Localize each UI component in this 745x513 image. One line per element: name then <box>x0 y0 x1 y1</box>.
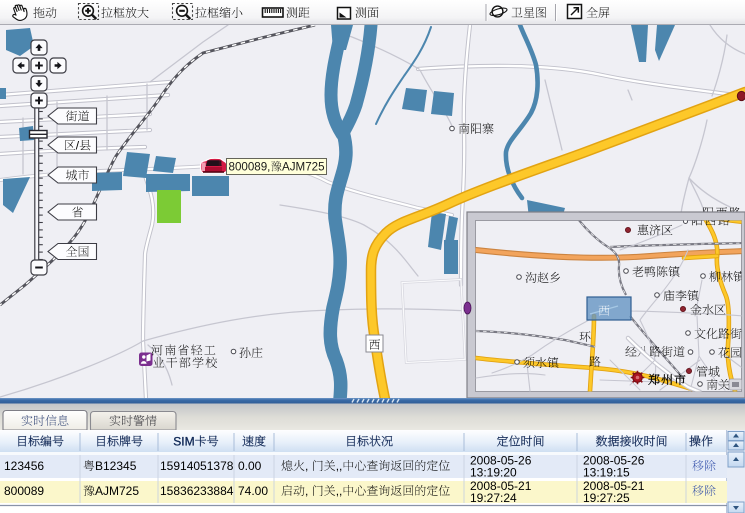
svg-text:800089: 800089 <box>4 484 44 498</box>
svg-text:,: , <box>305 484 308 498</box>
svg-text:0.00: 0.00 <box>238 459 262 473</box>
svg-text:800089,: 800089, <box>229 161 271 174</box>
svg-text:B12345: B12345 <box>95 459 137 473</box>
svg-text:19:27:24: 19:27:24 <box>470 491 517 505</box>
svg-text:AJM725: AJM725 <box>282 161 325 174</box>
svg-text:15836233884: 15836233884 <box>160 484 234 498</box>
svg-text:SIM: SIM <box>173 435 194 449</box>
svg-text:13:19:15: 13:19:15 <box>583 466 630 480</box>
svg-text:13:19:20: 13:19:20 <box>470 466 517 480</box>
svg-text:19:27:25: 19:27:25 <box>583 491 630 505</box>
svg-text:,: , <box>305 459 308 473</box>
svg-text:,,: ,, <box>336 484 343 498</box>
svg-text:123456: 123456 <box>4 459 44 473</box>
svg-text:,,: ,, <box>336 459 343 473</box>
svg-text:15914051378: 15914051378 <box>160 459 234 473</box>
svg-text:74.00: 74.00 <box>238 484 268 498</box>
svg-text:AJM725: AJM725 <box>95 484 139 498</box>
